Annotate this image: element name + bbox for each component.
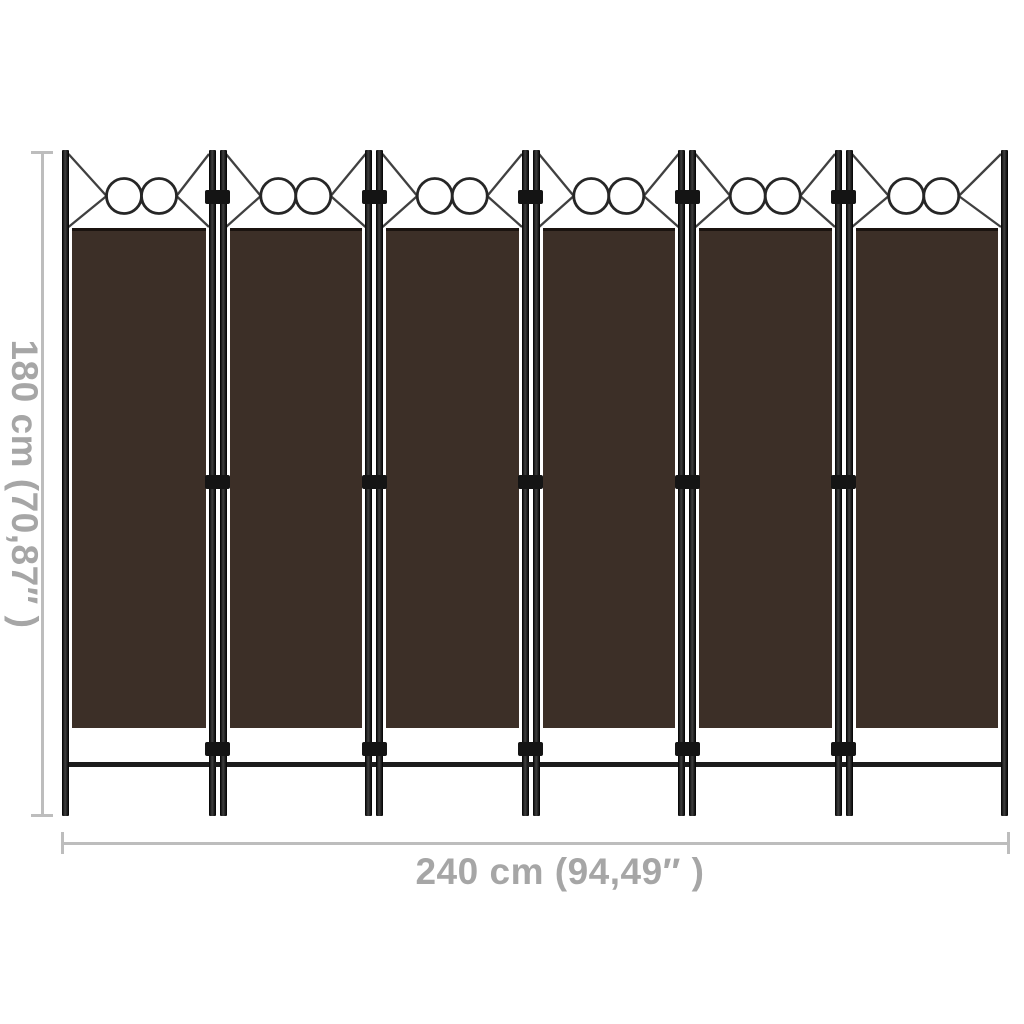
decor-diagonal-line — [800, 196, 835, 227]
decor-diagonal-line — [487, 196, 522, 227]
hinge — [205, 742, 230, 756]
hinge — [205, 190, 230, 204]
panel-fabric — [856, 228, 998, 728]
panel-fabric — [230, 228, 363, 728]
decor-circle — [609, 179, 644, 214]
panel-crossbar — [62, 762, 221, 767]
panel-crossbar — [684, 762, 848, 767]
height-dimension-cap-bottom — [31, 814, 53, 817]
width-dimension-cap-right — [1007, 832, 1010, 854]
hinge — [518, 475, 543, 489]
hinge — [362, 742, 387, 756]
decor-circle — [142, 179, 177, 214]
decor-diagonal-line — [383, 154, 418, 196]
height-dimension-cap-top — [31, 151, 53, 154]
decor-circle — [924, 179, 959, 214]
product-diagram: 180 cm (70,87″ ) 240 cm (94,49″ ) — [0, 0, 1024, 1024]
panel-fabric — [699, 228, 832, 728]
decor-diagonal-line — [331, 154, 366, 196]
decor-circle — [417, 179, 452, 214]
frame-pole — [62, 150, 69, 816]
decor-diagonal-line — [696, 154, 731, 196]
decor-circle — [296, 179, 331, 214]
decor-diagonal-line — [539, 154, 574, 196]
decor-circle — [261, 179, 296, 214]
hinge — [362, 475, 387, 489]
hinge — [675, 742, 700, 756]
decor-circle — [730, 179, 765, 214]
decor-diagonal-line — [800, 154, 835, 196]
panel-crossbar — [371, 762, 535, 767]
panel-crossbar — [840, 762, 1008, 767]
hinge — [675, 475, 700, 489]
decor-circle — [107, 179, 142, 214]
decor-diagonal-line — [852, 196, 889, 227]
decor-diagonal-line — [696, 196, 731, 227]
decor-diagonal-line — [226, 196, 261, 227]
hinge — [205, 475, 230, 489]
decor-diagonal-line — [959, 196, 1001, 227]
decor-circle — [765, 179, 800, 214]
decor-diagonal-line — [177, 154, 210, 196]
decor-diagonal-line — [644, 154, 679, 196]
panel-crossbar — [214, 762, 378, 767]
panel-fabric — [386, 228, 519, 728]
panel-fabric — [72, 228, 206, 728]
decor-diagonal-line — [644, 196, 679, 227]
hinge — [831, 475, 856, 489]
width-dimension-cap-left — [61, 832, 64, 854]
width-dimension-label: 240 cm (94,49″ ) — [310, 851, 810, 893]
decor-diagonal-line — [852, 154, 889, 196]
decor-circle — [452, 179, 487, 214]
decor-diagonal-line — [331, 196, 366, 227]
decor-diagonal-line — [226, 154, 261, 196]
width-dimension-line — [62, 842, 1008, 845]
decor-circle — [574, 179, 609, 214]
height-dimension-label: 180 cm (70,87″ ) — [4, 284, 44, 684]
panel-fabric — [543, 228, 676, 728]
hinge — [518, 742, 543, 756]
decor-diagonal-line — [959, 154, 1001, 196]
decor-diagonal-line — [69, 196, 107, 227]
decor-circle — [889, 179, 924, 214]
decor-diagonal-line — [487, 154, 522, 196]
hinge — [362, 190, 387, 204]
hinge — [831, 190, 856, 204]
hinge — [831, 742, 856, 756]
panel-crossbar — [527, 762, 691, 767]
frame-pole — [1001, 150, 1008, 816]
hinge — [675, 190, 700, 204]
decor-diagonal-line — [539, 196, 574, 227]
hinge — [518, 190, 543, 204]
decor-diagonal-line — [69, 154, 107, 196]
decor-diagonal-line — [383, 196, 418, 227]
